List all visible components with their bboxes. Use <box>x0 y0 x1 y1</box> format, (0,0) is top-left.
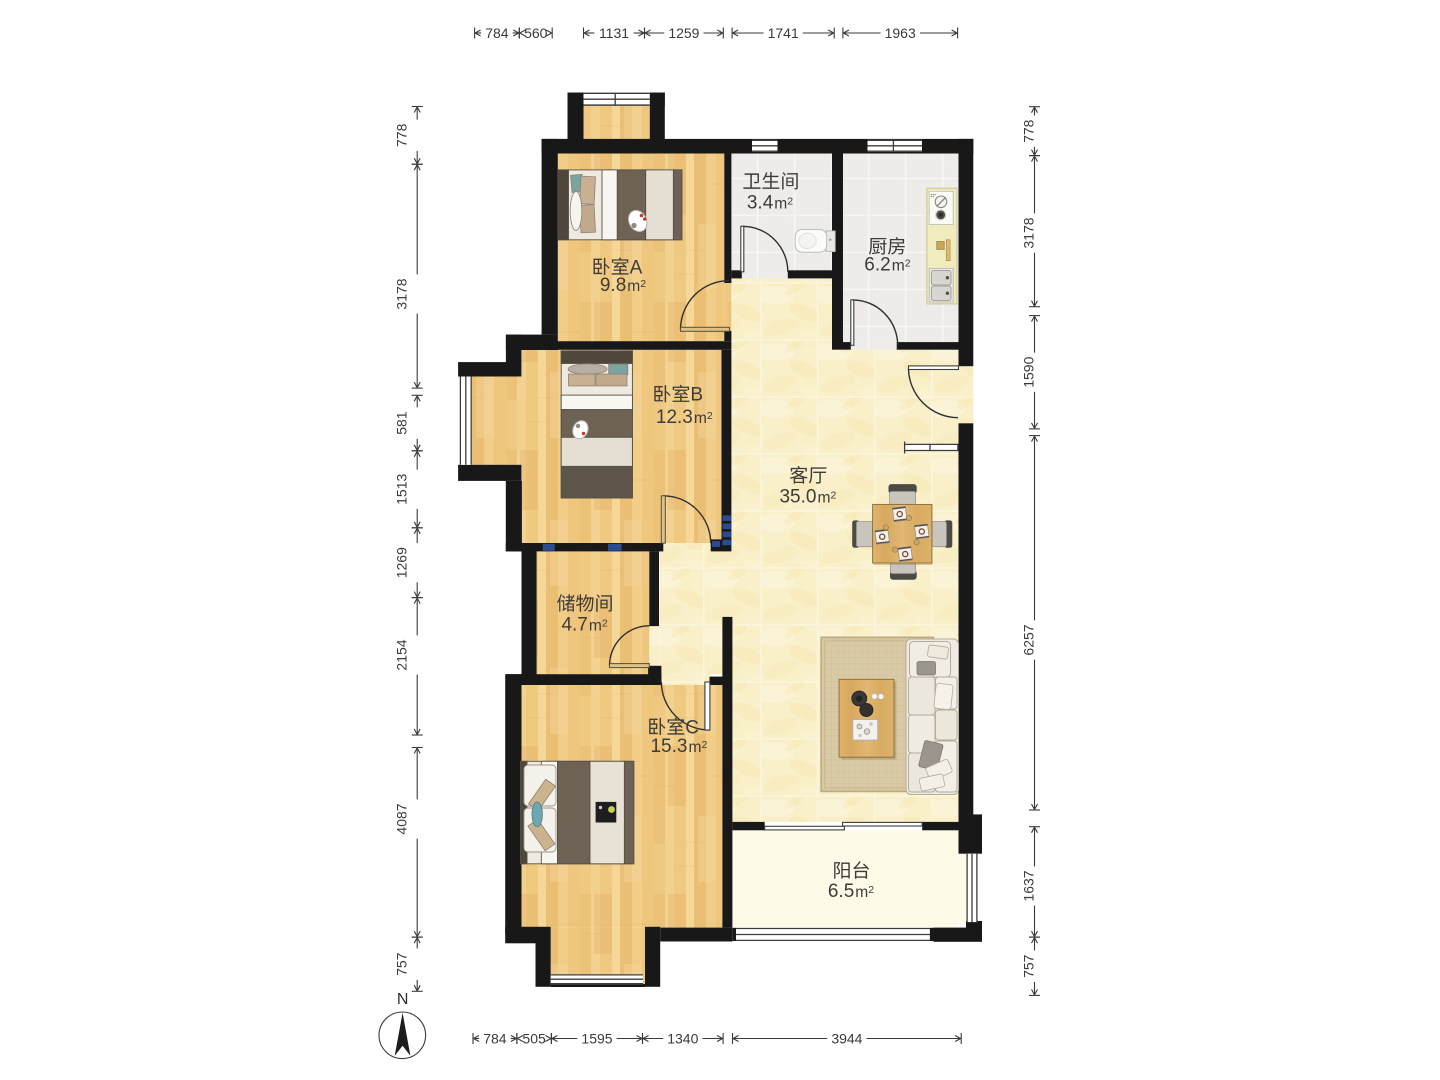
svg-text:784: 784 <box>485 25 509 41</box>
svg-text:6257: 6257 <box>1021 624 1037 655</box>
svg-text:B: B <box>690 385 703 406</box>
svg-text:3.4m2: 3.4m2 <box>747 192 793 213</box>
svg-text:1595: 1595 <box>581 1031 612 1047</box>
svg-text:757: 757 <box>1021 954 1037 978</box>
svg-text:1741: 1741 <box>768 25 799 41</box>
svg-text:3178: 3178 <box>394 278 410 309</box>
svg-text:1963: 1963 <box>885 25 916 41</box>
svg-text:3178: 3178 <box>1021 217 1037 248</box>
svg-text:1131: 1131 <box>599 25 629 41</box>
svg-text:784: 784 <box>483 1031 507 1047</box>
svg-text:1590: 1590 <box>1021 356 1037 387</box>
svg-text:1269: 1269 <box>394 547 410 578</box>
svg-text:3944: 3944 <box>831 1031 862 1047</box>
svg-text:N: N <box>397 991 409 1008</box>
svg-text:12.3m2: 12.3m2 <box>656 407 713 428</box>
svg-text:9.8m2: 9.8m2 <box>600 275 646 296</box>
svg-text:778: 778 <box>1021 119 1037 143</box>
svg-text:1637: 1637 <box>1021 870 1037 901</box>
svg-text:778: 778 <box>394 123 410 147</box>
svg-text:6.5m2: 6.5m2 <box>828 881 874 902</box>
svg-text:4.7m2: 4.7m2 <box>561 615 607 636</box>
svg-text:1259: 1259 <box>668 25 699 41</box>
svg-text:6.2m2: 6.2m2 <box>864 255 910 276</box>
svg-text:1340: 1340 <box>667 1031 698 1047</box>
svg-text:1513: 1513 <box>394 474 410 505</box>
svg-text:2154: 2154 <box>394 639 410 670</box>
svg-text:15.3m2: 15.3m2 <box>650 736 707 757</box>
svg-text:35.0m2: 35.0m2 <box>779 486 836 507</box>
svg-text:560: 560 <box>524 25 548 41</box>
svg-text:4087: 4087 <box>394 803 410 834</box>
svg-text:505: 505 <box>522 1031 546 1047</box>
svg-text:757: 757 <box>394 952 410 976</box>
svg-text:581: 581 <box>394 411 410 435</box>
svg-text:A: A <box>630 257 643 278</box>
